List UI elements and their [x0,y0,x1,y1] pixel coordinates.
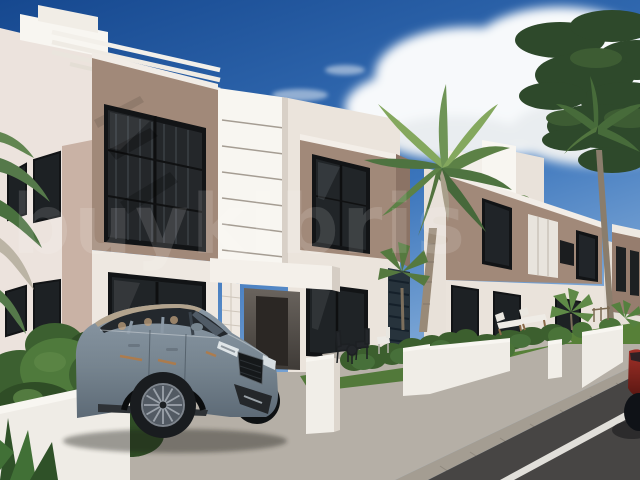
large-window [104,104,206,252]
architectural-render-photo: buykibris [0,0,640,480]
side-mirror [191,323,203,331]
render-canvas [0,0,640,480]
wall-pillar-1 [306,358,334,434]
pergola [592,306,610,322]
wall-end-pillar [403,348,430,396]
fin-column [218,88,288,272]
villa-middle [288,98,410,372]
wall-pillar-2 [548,343,562,379]
upper-window-b [312,154,370,254]
